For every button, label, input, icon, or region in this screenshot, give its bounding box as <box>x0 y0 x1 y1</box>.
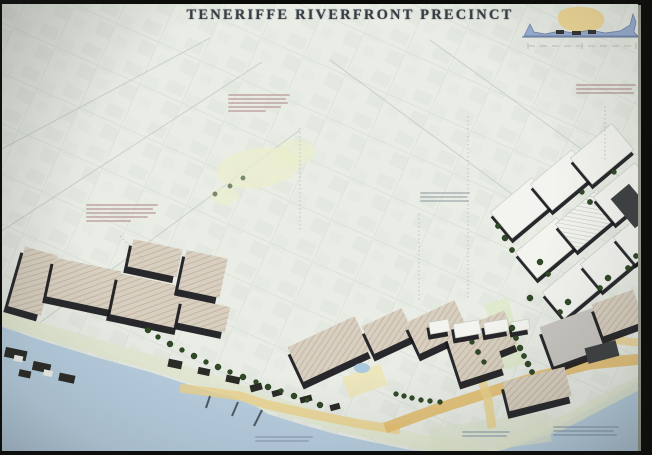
annotation-note <box>86 204 158 224</box>
board-edge-highlight <box>638 5 641 451</box>
masterplan-board-photo: TENERIFFE RIVERFRONT PRECINCT <box>0 0 652 455</box>
annotation-note <box>228 94 290 114</box>
presentation-board: TENERIFFE RIVERFRONT PRECINCT <box>2 4 638 451</box>
annotation-note <box>553 426 619 438</box>
annotation-note <box>576 84 636 96</box>
board-title: TENERIFFE RIVERFRONT PRECINCT <box>187 7 514 24</box>
annotation-note <box>255 436 313 444</box>
annotation-note <box>420 192 470 204</box>
annotation-note <box>462 431 510 439</box>
masterplan-map <box>2 4 638 451</box>
